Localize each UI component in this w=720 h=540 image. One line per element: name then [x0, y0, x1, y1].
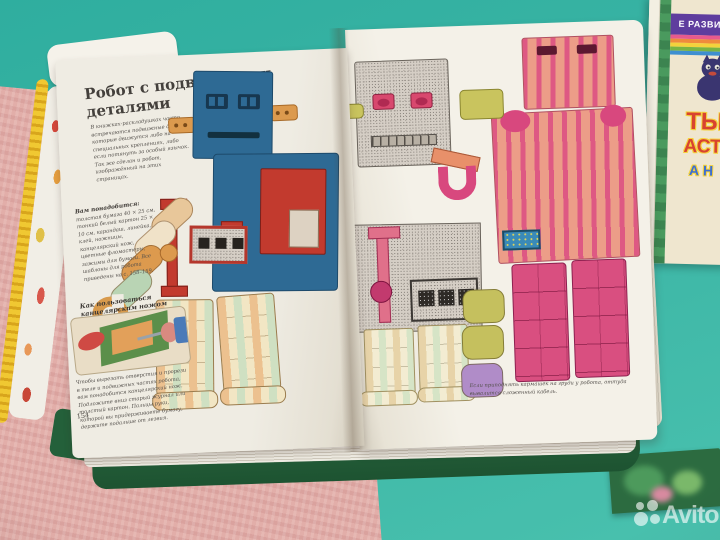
- blue-robot-head: [192, 71, 273, 160]
- right-page-caption: Если приподнять кармашек на груди у робо…: [469, 379, 629, 398]
- green-book-art-blob: [671, 470, 703, 496]
- avito-logo-icon: [634, 500, 662, 530]
- pink-robot-head: [521, 35, 615, 110]
- pink-robot-hand-tab: [459, 89, 504, 121]
- background-kids-book: Е РАЗВИТ ТЫ АСТ А Н: [643, 0, 720, 265]
- cat-eye: [715, 65, 720, 70]
- blue-robot-eye: [238, 94, 260, 109]
- plasticine-cat-illustration: [693, 58, 720, 109]
- kids-book-title-fragment: ТЫ: [686, 108, 720, 137]
- arm-segment-olive: [462, 289, 505, 324]
- arm-segment-olive: [461, 325, 504, 360]
- gray-robot-claw-shape: [438, 166, 477, 201]
- gray-robot-eye: [410, 92, 433, 109]
- pink-robot-eye: [577, 44, 597, 54]
- gray-robot-eye: [372, 93, 395, 110]
- materials-list: Вам понадобится: толстая бумага 40 × 25 …: [75, 198, 164, 284]
- blue-robot-mouth: [208, 132, 260, 138]
- avito-watermark: Avito: [634, 495, 720, 535]
- kids-book-rainbow-stripes: [670, 34, 720, 56]
- gray-robot-leg: [363, 328, 415, 396]
- pink-robot-illustration: [345, 20, 643, 30]
- right-book-page: Если приподнять кармашек на груди у робо…: [345, 20, 657, 450]
- gray-robot-foot: [360, 390, 418, 407]
- kids-book-series-band: Е РАЗВИТ: [670, 13, 720, 36]
- page-number: 154: [76, 411, 89, 420]
- cat-body: [697, 74, 720, 101]
- pink-robot-eye: [537, 46, 557, 56]
- pink-robot-leg: [571, 258, 630, 378]
- avito-wordmark: Avito: [662, 501, 719, 530]
- pink-robot-arm-label: [502, 229, 541, 250]
- blue-robot-chest-panel: [189, 226, 247, 265]
- gray-robot-mouth: [371, 134, 437, 147]
- materials-text: толстая бумага 40 × 25 см, тонкий белый …: [76, 207, 156, 283]
- howto-text: Чтобы вырезать отверстия и прорези в тел…: [76, 367, 193, 432]
- kids-book-title-fragment: А Н: [689, 162, 714, 179]
- blue-robot-foot: [220, 385, 287, 406]
- blue-robot-ear-tab: [269, 104, 298, 121]
- kids-book-title-fragment: АСТ: [683, 136, 720, 159]
- cat-eye: [706, 64, 711, 69]
- blue-robot-red-panel: [260, 168, 327, 255]
- gray-robot-illustration: [345, 20, 643, 30]
- cat-mouth: [708, 71, 716, 75]
- photo-scene: Е РАЗВИТ ТЫ АСТ А Н: [0, 0, 720, 540]
- blue-robot-leg: [216, 292, 281, 392]
- left-book-page: Робот с подвижными деталями В книжках-ра…: [55, 48, 364, 458]
- pink-robot-leg: [511, 262, 570, 382]
- blue-robot-eye: [206, 94, 228, 109]
